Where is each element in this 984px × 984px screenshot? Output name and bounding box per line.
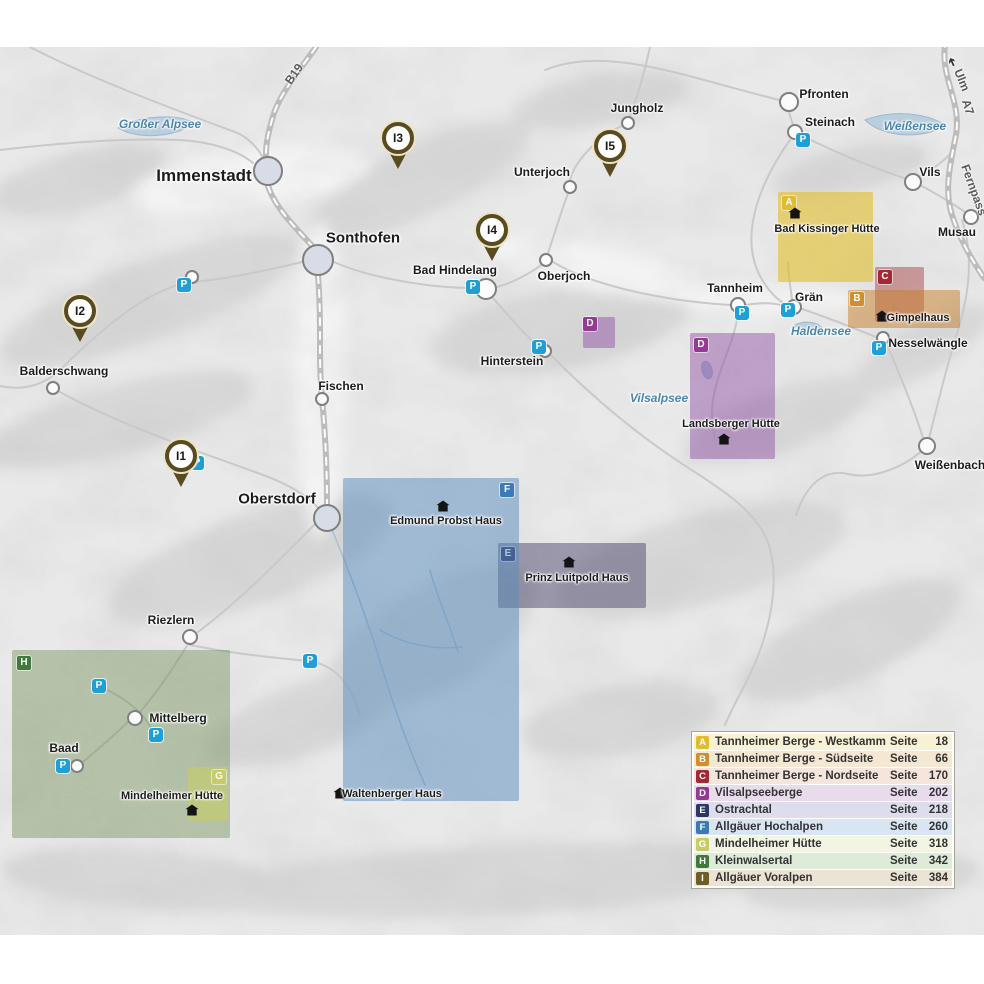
town-circle-wei-enbach [918,437,936,455]
pin-head: I4 [474,212,510,248]
town-label-unterjoch: Unterjoch [514,165,570,179]
town-label-mittelberg: Mittelberg [149,711,206,725]
parking-icon-hinterstein[interactable]: P [532,340,546,354]
town-label-wei-enbach: Weißenbach [915,458,984,472]
lake-label-wei-ensee: Weißensee [884,119,946,133]
pin-label: I3 [386,126,410,150]
parking-icon-tannheim[interactable]: P [735,306,749,320]
legend-label: Vilsalpseeberge [715,787,890,799]
legend-label: Tannheimer Berge - Südseite [715,753,890,765]
region-badge-h: H [17,656,31,670]
legend-row-e[interactable]: EOstrachtalSeite218 [694,802,952,818]
legend-row-b[interactable]: BTannheimer Berge - SüdseiteSeite66 [694,751,952,767]
pin-label: I1 [169,444,193,468]
legend-page-number: 318 [922,838,952,850]
tour-pin-i1[interactable]: I1 [163,438,199,492]
town-label-baad: Baad [49,741,78,755]
hut-label-edmund-probst-haus: Edmund Probst Haus [390,515,502,527]
tour-pin-i3[interactable]: I3 [380,120,416,174]
legend-badge-a: A [696,736,709,749]
town-label-steinach: Steinach [805,115,855,129]
town-label-tannheim: Tannheim [707,281,763,295]
town-label-balderschwang: Balderschwang [20,364,109,378]
legend-page-word: Seite [890,821,922,833]
town-label-immenstadt: Immenstadt [156,166,251,186]
town-circle-mittelberg [127,710,143,726]
lake-label-gro-er-alpsee: Großer Alpsee [119,117,201,131]
tour-pin-i2[interactable]: I2 [62,293,98,347]
legend-badge-i: I [696,872,709,885]
legend-row-d[interactable]: DVilsalpseebergeSeite202 [694,785,952,801]
parking-icon-dot[interactable]: P [177,278,191,292]
legend-badge-e: E [696,804,709,817]
legend-label: Kleinwalsertal [715,855,890,867]
town-circle-fischen [315,392,329,406]
pin-head: I3 [380,120,416,156]
town-label-oberstdorf: Oberstdorf [238,491,316,508]
parking-icon-bad-hindelang[interactable]: P [466,280,480,294]
legend-label: Allgäuer Hochalpen [715,821,890,833]
town-label-nesselw-ngle: Nesselwängle [888,336,967,350]
parking-icon-nesselw-ngle[interactable]: P [872,341,886,355]
town-label-pfronten: Pfronten [799,87,848,101]
region-badge-g: G [212,770,226,784]
town-label-hinterstein: Hinterstein [481,354,544,368]
legend-row-c[interactable]: CTannheimer Berge - NordseiteSeite170 [694,768,952,784]
pin-label: I5 [598,134,622,158]
hut-label-mindelheimer-h-tte: Mindelheimer Hütte [121,790,223,802]
legend-page-number: 18 [922,736,952,748]
parking-icon[interactable]: P [92,679,106,693]
town-circle-pfronten [779,92,799,112]
legend-page-number: 170 [922,770,952,782]
hut-label-bad-kissinger-h-tte: Bad Kissinger Hütte [774,223,879,235]
town-label-oberjoch: Oberjoch [538,269,591,283]
legend-badge-h: H [696,855,709,868]
town-label-riezlern: Riezlern [148,613,195,627]
legend-label: Tannheimer Berge - Westkamm [715,736,890,748]
region-badge-d: D [694,338,708,352]
legend-page-word: Seite [890,753,922,765]
legend: ATannheimer Berge - WestkammSeite18BTann… [692,732,954,888]
town-label-vils: Vils [919,165,940,179]
legend-label: Tannheimer Berge - Nordseite [715,770,890,782]
map-canvas: ATannheimer Berge - WestkammSeite18BTann… [0,0,984,984]
legend-page-word: Seite [890,787,922,799]
legend-badge-c: C [696,770,709,783]
legend-page-word: Seite [890,872,922,884]
legend-label: Mindelheimer Hütte [715,838,890,850]
region-badge-f: F [500,483,514,497]
legend-page-word: Seite [890,804,922,816]
legend-label: Ostrachtal [715,804,890,816]
legend-row-h[interactable]: HKleinwalsertalSeite342 [694,853,952,869]
town-label-musau: Musau [938,225,976,239]
town-label-fischen: Fischen [318,379,363,393]
parking-icon[interactable]: P [303,654,317,668]
region-badge-a: A [782,196,796,210]
town-circle-balderschwang [46,381,60,395]
lake-label-haldensee: Haldensee [791,324,851,338]
legend-badge-d: D [696,787,709,800]
lake-label-vilsalpsee: Vilsalpsee [630,391,688,405]
hut-label-gimpelhaus: Gimpelhaus [887,312,950,324]
pin-head: I2 [62,293,98,329]
town-circle-oberstdorf [313,504,341,532]
town-label-sonthofen: Sonthofen [326,230,400,247]
legend-row-g[interactable]: GMindelheimer HütteSeite318 [694,836,952,852]
pin-head: I1 [163,438,199,474]
town-circle-oberjoch [539,253,553,267]
legend-page-word: Seite [890,770,922,782]
legend-label: Allgäuer Voralpen [715,872,890,884]
legend-badge-f: F [696,821,709,834]
tour-pin-i4[interactable]: I4 [474,212,510,266]
legend-page-number: 342 [922,855,952,867]
parking-icon-steinach[interactable]: P [796,133,810,147]
legend-badge-g: G [696,838,709,851]
town-label-gr-n: Grän [795,290,823,304]
legend-row-a[interactable]: ATannheimer Berge - WestkammSeite18 [694,734,952,750]
town-label-jungholz: Jungholz [611,101,664,115]
parking-icon-gr-n[interactable]: P [781,303,795,317]
legend-page-number: 384 [922,872,952,884]
region-badge-c: C [878,270,892,284]
hut-label-prinz-luitpold-haus: Prinz Luitpold Haus [525,572,628,584]
town-circle-baad [70,759,84,773]
hut-label-waltenberger-haus: Waltenberger Haus [342,788,442,800]
parking-icon-baad[interactable]: P [56,759,70,773]
town-circle-unterjoch [563,180,577,194]
hut-label-landsberger-h-tte: Landsberger Hütte [682,418,780,430]
region-badge-d: D [583,317,597,331]
region-badge-b: B [850,292,864,306]
town-circle-sonthofen [302,244,334,276]
pin-label: I4 [480,218,504,242]
legend-page-number: 218 [922,804,952,816]
tour-pin-i5[interactable]: I5 [592,128,628,182]
town-circle-riezlern [182,629,198,645]
town-circle-immenstadt [253,156,283,186]
legend-page-word: Seite [890,855,922,867]
legend-page-word: Seite [890,736,922,748]
legend-page-number: 202 [922,787,952,799]
legend-row-f[interactable]: FAllgäuer HochalpenSeite260 [694,819,952,835]
pin-head: I5 [592,128,628,164]
pin-label: I2 [68,299,92,323]
legend-row-i[interactable]: IAllgäuer VoralpenSeite384 [694,870,952,886]
legend-page-word: Seite [890,838,922,850]
legend-page-number: 260 [922,821,952,833]
parking-icon[interactable]: P [149,728,163,742]
legend-page-number: 66 [922,753,952,765]
legend-badge-b: B [696,753,709,766]
